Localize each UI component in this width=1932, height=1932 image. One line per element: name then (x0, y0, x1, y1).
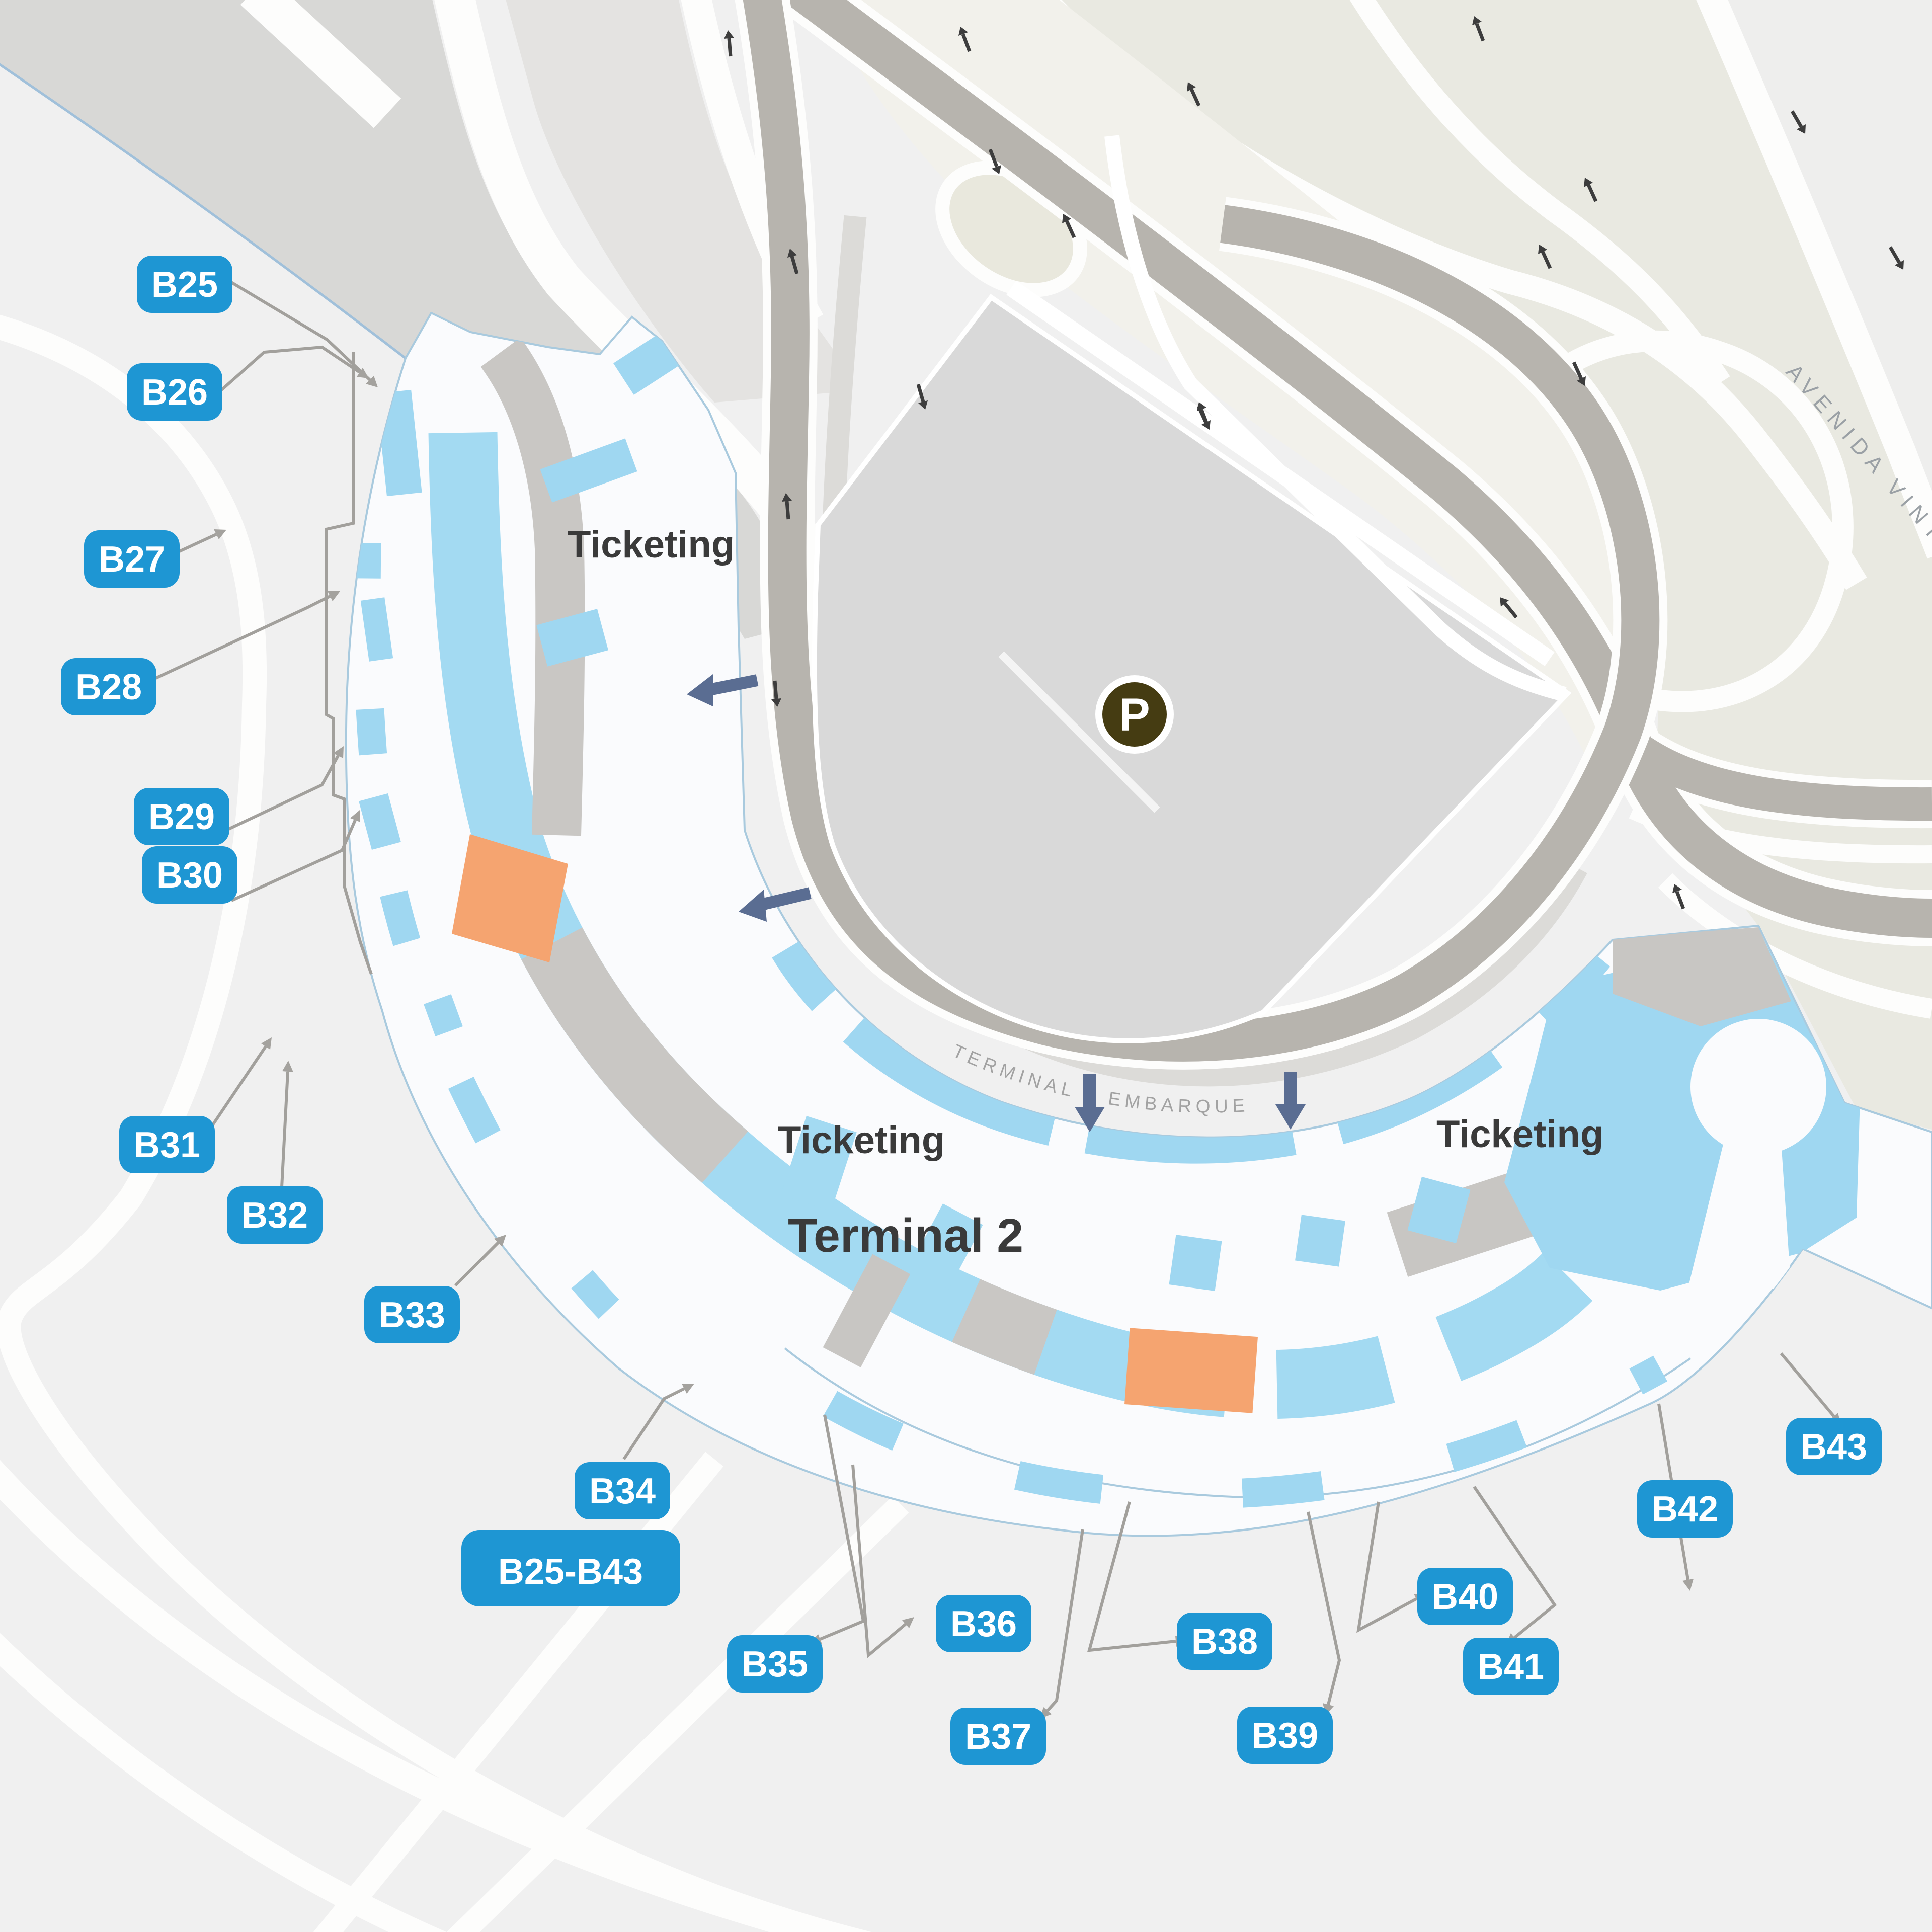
svg-text:B28: B28 (75, 667, 142, 707)
svg-text:Ticketing: Ticketing (778, 1119, 945, 1162)
svg-text:B25: B25 (151, 265, 218, 305)
svg-text:B36: B36 (950, 1604, 1017, 1644)
svg-text:B33: B33 (379, 1295, 445, 1335)
svg-text:B32: B32 (242, 1195, 308, 1236)
svg-text:B39: B39 (1252, 1716, 1318, 1756)
svg-text:B34: B34 (589, 1471, 656, 1511)
svg-text:B35: B35 (742, 1644, 808, 1684)
svg-text:P: P (1119, 689, 1150, 741)
svg-text:B27: B27 (99, 539, 165, 580)
svg-text:B41: B41 (1478, 1647, 1544, 1687)
svg-text:B31: B31 (134, 1125, 200, 1165)
svg-text:B37: B37 (965, 1717, 1031, 1757)
svg-text:Terminal 2: Terminal 2 (788, 1209, 1023, 1262)
svg-text:B26: B26 (141, 372, 208, 413)
svg-text:B40: B40 (1432, 1577, 1498, 1617)
svg-text:B42: B42 (1652, 1489, 1718, 1530)
svg-text:Ticketing: Ticketing (1436, 1113, 1603, 1156)
svg-text:Ticketing: Ticketing (568, 523, 735, 566)
svg-text:B30: B30 (156, 855, 223, 896)
svg-text:B43: B43 (1801, 1427, 1867, 1467)
svg-text:B25-B43: B25-B43 (498, 1552, 643, 1592)
svg-text:B29: B29 (148, 797, 215, 837)
svg-text:B38: B38 (1191, 1622, 1258, 1662)
